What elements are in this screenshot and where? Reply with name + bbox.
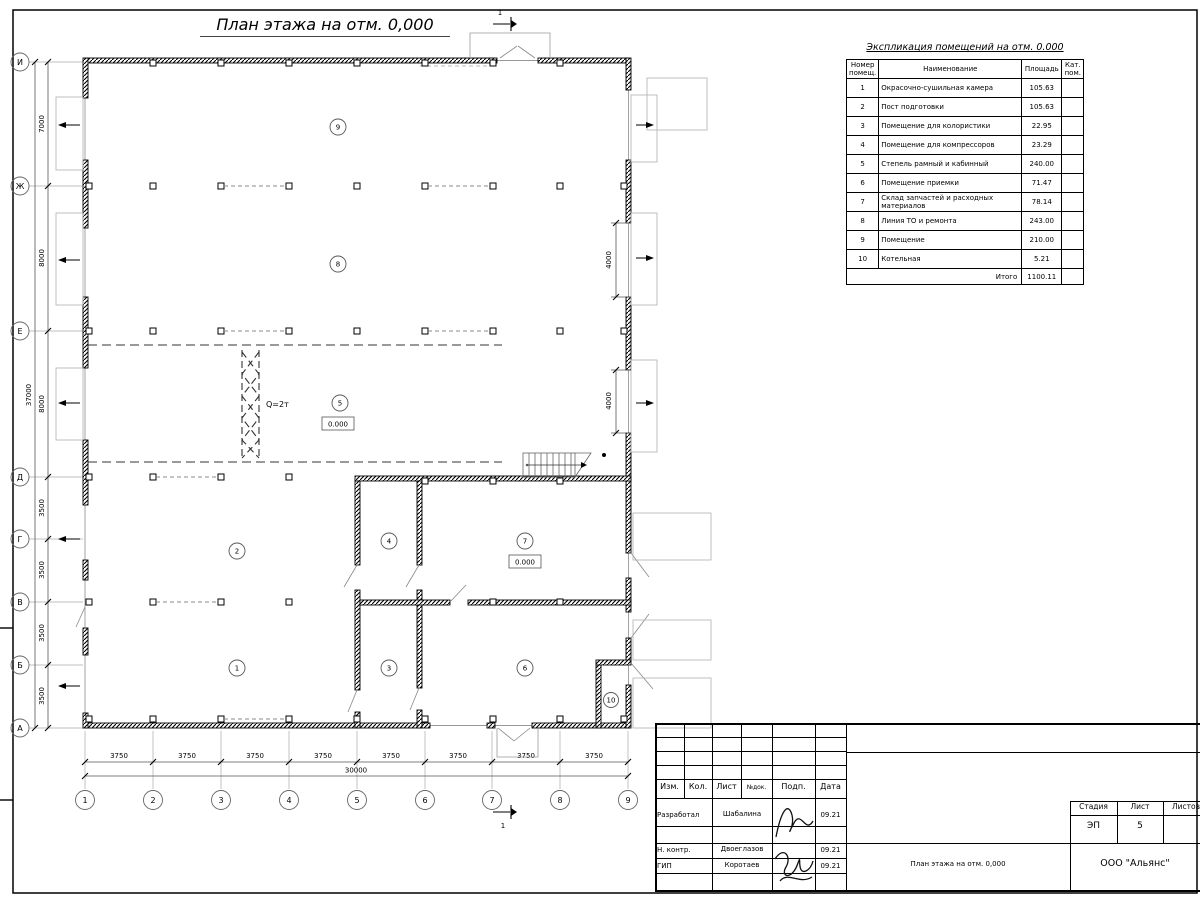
axis-label: И: [17, 58, 23, 67]
room-name: Склад запчастей и расходных материалов: [879, 193, 1022, 212]
signature-kontrol: [772, 841, 815, 889]
title-block: Изм. Кол. Лист №док. Подп. Дата Разработ…: [655, 723, 1200, 891]
room-num: 10: [847, 250, 879, 269]
elevation-value: 0.000: [515, 559, 535, 567]
dim-label: 3750: [178, 752, 196, 760]
dim-label: 3750: [382, 752, 400, 760]
room-num: 2: [847, 98, 879, 117]
room-number: 6: [523, 665, 528, 673]
section-number: 1: [501, 822, 505, 830]
room-number: 5: [338, 400, 342, 408]
room-num: 3: [847, 117, 879, 136]
table-row: 2Пост подготовки105.63: [847, 98, 1084, 117]
room-area: 22.95: [1022, 117, 1062, 136]
axis-label: 9: [625, 796, 630, 805]
room-cat: [1062, 79, 1084, 98]
room-cat: [1062, 193, 1084, 212]
room-schedule-title: Экспликация помещений на отм. 0.000: [846, 42, 1084, 53]
room-number: 1: [235, 665, 239, 673]
axis-label: Г: [18, 535, 23, 544]
room-cat: [1062, 136, 1084, 155]
col-header-number: Номерпомещ.: [847, 60, 879, 79]
reference-dot: [602, 453, 606, 457]
dim-label: 3750: [110, 752, 128, 760]
room-number-bubbles: 1 2 3 4 5 6 7 8 9 10: [229, 119, 619, 708]
room-cat: [1062, 231, 1084, 250]
tb-name: Шабалина: [712, 811, 772, 819]
table-row: 6Помещение приемки71.47: [847, 174, 1084, 193]
tb-date: 09.21: [815, 863, 846, 871]
table-row: 3Помещение для колористики22.95: [847, 117, 1084, 136]
dim-total-label: 37000: [25, 384, 33, 406]
tb-col-list: Лист: [712, 783, 741, 792]
room-area: 78.14: [1022, 193, 1062, 212]
room-num: 7: [847, 193, 879, 212]
table-row: 5Степель рамный и кабинный240.00: [847, 155, 1084, 174]
room-name: Помещение для компрессоров: [879, 136, 1022, 155]
elevation-value: 0.000: [328, 421, 348, 429]
room-cat: [1062, 155, 1084, 174]
axis-label: 1: [82, 796, 87, 805]
room-cat: [1062, 117, 1084, 136]
stairs: [523, 453, 606, 477]
col-header-category: Кат.пом.: [1062, 60, 1084, 79]
tb-stage-value: ЭП: [1070, 822, 1117, 832]
tb-name: Коротаев: [712, 862, 772, 870]
tb-stage-label: Стадия: [1070, 803, 1117, 811]
left-dimensions: 7000 8000 8000 3500 3500 3500 3500 37000: [25, 59, 51, 731]
table-row: 1Окрасочно-сушильная камера105.63: [847, 79, 1084, 98]
room-name: Окрасочно-сушильная камера: [879, 79, 1022, 98]
dim-label: 3500: [38, 561, 46, 579]
dim-label: 3500: [38, 687, 46, 705]
room-name: Линия ТО и ремонта: [879, 212, 1022, 231]
tb-col-data: Дата: [815, 783, 846, 792]
col-header-name: Наименование: [879, 60, 1022, 79]
room-area: 23.29: [1022, 136, 1062, 155]
room-name: Помещение для колористики: [879, 117, 1022, 136]
room-name: Степель рамный и кабинный: [879, 155, 1022, 174]
axis-label: 7: [489, 796, 494, 805]
tb-sheets-label: Листов: [1163, 803, 1200, 811]
room-num: 6: [847, 174, 879, 193]
room-area: 71.47: [1022, 174, 1062, 193]
room-num: 9: [847, 231, 879, 250]
table-row: 8Линия ТО и ремонта243.00: [847, 212, 1084, 231]
room-number: 9: [336, 124, 340, 132]
tb-date: 09.21: [815, 847, 846, 855]
axis-label: 8: [557, 796, 562, 805]
dim-total-label: 30000: [345, 767, 367, 775]
drawing-title: План этажа на отм. 0,000: [200, 15, 450, 37]
dim-label: 7000: [38, 115, 46, 133]
tb-col-kol: Кол.: [684, 783, 712, 792]
room-num: 8: [847, 212, 879, 231]
dim-label: 3750: [449, 752, 467, 760]
room-schedule: Экспликация помещений на отм. 0.000 Номе…: [846, 42, 1086, 285]
axis-label: Ж: [16, 182, 25, 191]
section-mark-top: 1: [493, 9, 517, 31]
bottom-dimensions: 3750 3750 3750 3750 3750 3750 3750 3750 …: [82, 752, 631, 779]
table-header-row: Номерпомещ. Наименование Площадь Кат.пом…: [847, 60, 1084, 79]
room-number: 10: [607, 697, 616, 705]
room-area: 5.21: [1022, 250, 1062, 269]
room-name: Котельная: [879, 250, 1022, 269]
signature-razrabotal: [772, 795, 815, 843]
door-swings: [76, 46, 653, 741]
axis-label: Д: [17, 473, 23, 482]
crane-zone: Q=2т: [88, 345, 502, 462]
dim-label: 4000: [605, 392, 613, 410]
drawing-sheet: И Ж Е Д Г В Б А 1 2 3 4 5 6 7 8 9 7000 8…: [0, 0, 1200, 900]
table-row: 9Помещение210.00: [847, 231, 1084, 250]
room-name: Помещение приемки: [879, 174, 1022, 193]
room-cat: [1062, 174, 1084, 193]
tb-role: Разработал: [657, 811, 711, 819]
room-area: 243.00: [1022, 212, 1062, 231]
table-row: 4Помещение для компрессоров23.29: [847, 136, 1084, 155]
table-total-row: Итого1100.11: [847, 269, 1084, 285]
tb-name: Двоеглазов: [712, 846, 772, 854]
axis-label: Е: [17, 327, 22, 336]
tb-date: 09.21: [815, 812, 846, 820]
room-area: 105.63: [1022, 98, 1062, 117]
room-number: 2: [235, 548, 239, 556]
axis-label: А: [17, 724, 23, 733]
tb-doc-title: План этажа на отм. 0,000: [846, 861, 1070, 869]
axis-label: Б: [17, 661, 23, 670]
dim-label: 3750: [585, 752, 603, 760]
section-number: 1: [498, 9, 502, 17]
table-row: 7Склад запчастей и расходных материалов7…: [847, 193, 1084, 212]
column-tie-lines: [156, 186, 490, 719]
tb-col-doc: №док.: [741, 785, 772, 792]
column-axis-bubbles: 1 2 3 4 5 6 7 8 9: [76, 791, 638, 810]
tb-role: Н. контр.: [657, 846, 711, 854]
room-num: 5: [847, 155, 879, 174]
room-cat: [1062, 250, 1084, 269]
total-label: Итого: [847, 269, 1022, 285]
axis-label: 6: [422, 796, 427, 805]
room-area: 240.00: [1022, 155, 1062, 174]
room-num: 1: [847, 79, 879, 98]
crane-capacity-label: Q=2т: [266, 400, 289, 409]
room-name: Помещение: [879, 231, 1022, 250]
room-number: 4: [387, 538, 392, 546]
dim-label: 8000: [38, 249, 46, 267]
dim-label: 8000: [38, 395, 46, 413]
axis-label: 5: [354, 796, 359, 805]
axis-label: 2: [150, 796, 155, 805]
room-number: 7: [523, 538, 527, 546]
tb-sheet-label: Лист: [1117, 803, 1163, 811]
dim-label: 3750: [246, 752, 264, 760]
dim-label: 3750: [314, 752, 332, 760]
room-number: 3: [387, 665, 391, 673]
room-cat: [1062, 212, 1084, 231]
tb-sheet-number: 5: [1117, 822, 1163, 832]
axis-label: 4: [286, 796, 291, 805]
room-schedule-table: Номерпомещ. Наименование Площадь Кат.пом…: [846, 59, 1084, 285]
total-value: 1100.11: [1022, 269, 1062, 285]
tb-role: ГИП: [657, 862, 711, 870]
room-cat: [1062, 98, 1084, 117]
room-area: 210.00: [1022, 231, 1062, 250]
room-name: Пост подготовки: [879, 98, 1022, 117]
room-num: 4: [847, 136, 879, 155]
axis-label: 3: [218, 796, 223, 805]
dim-label: 3500: [38, 499, 46, 517]
dim-label: 3500: [38, 624, 46, 642]
axis-label: В: [17, 598, 23, 607]
table-row: 10Котельная5.21: [847, 250, 1084, 269]
room-number: 8: [336, 261, 340, 269]
tb-col-izm: Изм.: [655, 783, 684, 792]
dim-label: 4000: [605, 251, 613, 269]
room-cat: [1062, 269, 1084, 285]
col-header-area: Площадь: [1022, 60, 1062, 79]
tb-col-podp: Подп.: [772, 783, 815, 792]
tb-company: ООО "Альянс": [1070, 859, 1200, 869]
room-area: 105.63: [1022, 79, 1062, 98]
dim-label: 3750: [517, 752, 535, 760]
